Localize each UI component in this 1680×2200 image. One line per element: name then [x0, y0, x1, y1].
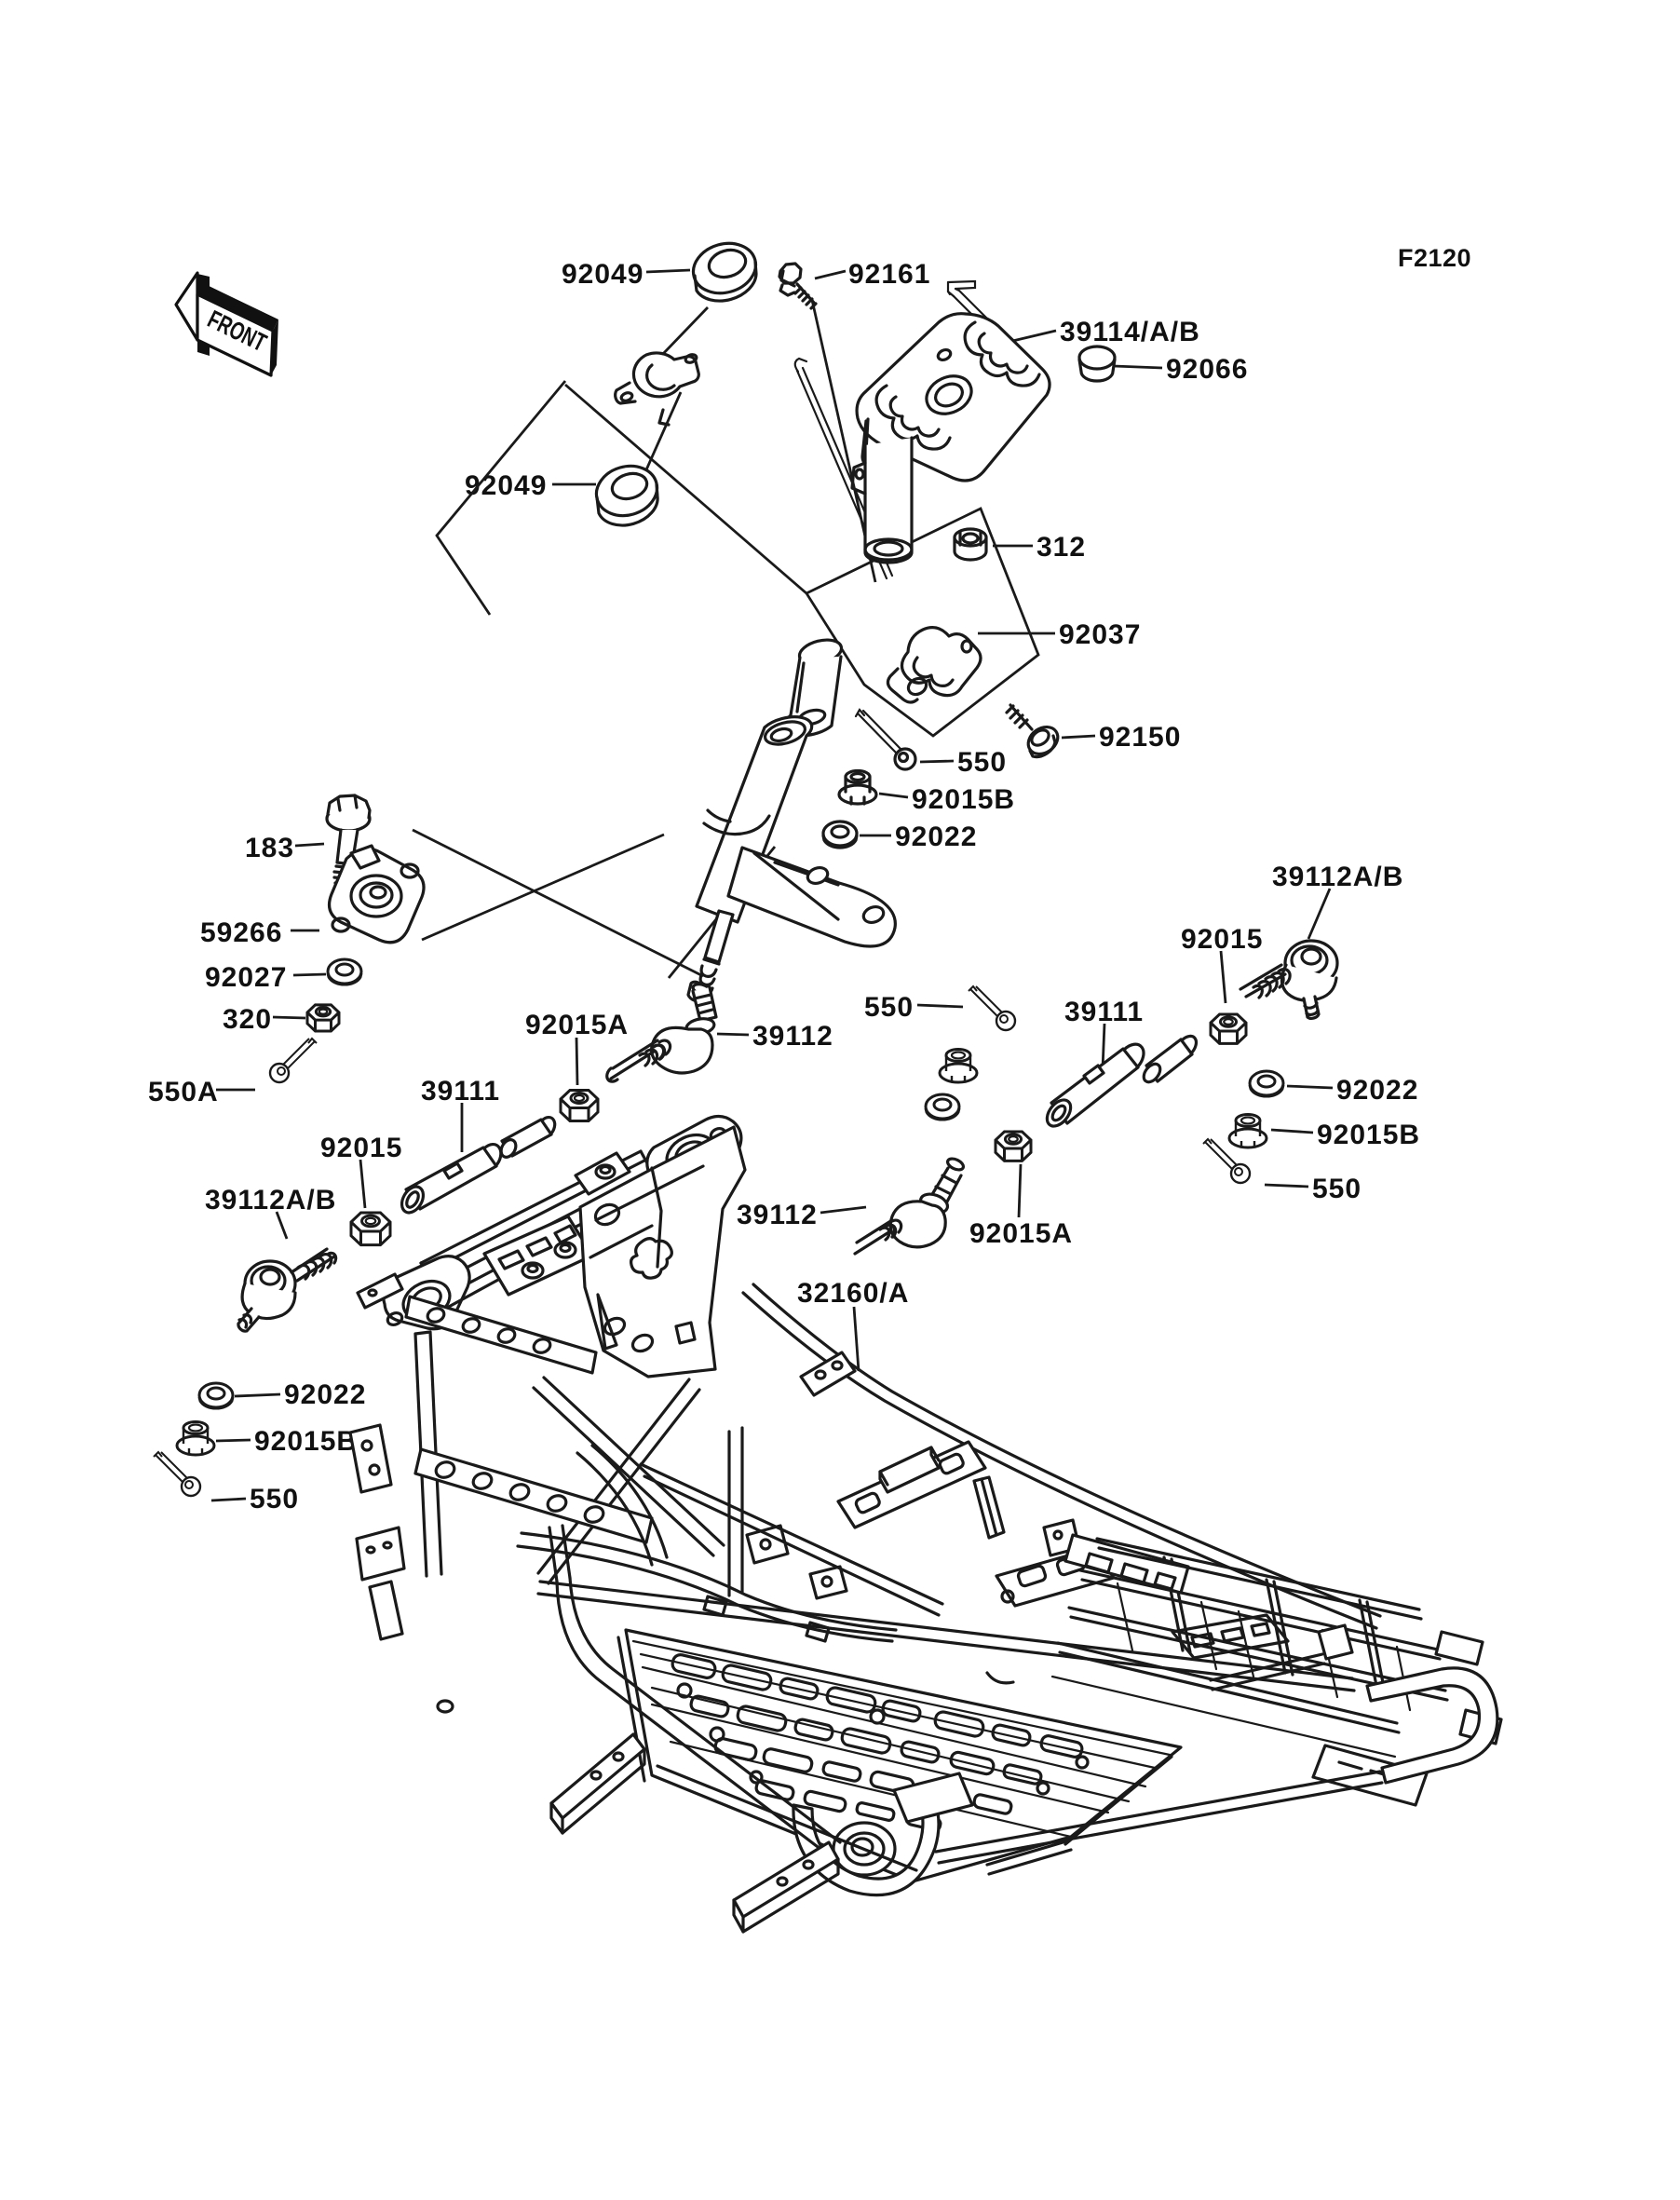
svg-text:92015A: 92015A — [969, 1218, 1073, 1249]
svg-text:550: 550 — [864, 992, 914, 1023]
svg-text:92015B: 92015B — [1317, 1120, 1420, 1150]
svg-text:92037: 92037 — [1059, 619, 1141, 650]
svg-text:92015: 92015 — [320, 1133, 402, 1163]
svg-text:92027: 92027 — [205, 962, 287, 993]
svg-text:92049: 92049 — [562, 259, 644, 290]
svg-text:39112A/B: 39112A/B — [205, 1185, 336, 1215]
svg-text:39112A/B: 39112A/B — [1272, 862, 1403, 892]
svg-text:39112: 39112 — [752, 1021, 833, 1052]
svg-text:92015: 92015 — [1181, 924, 1263, 955]
svg-text:550: 550 — [1312, 1174, 1362, 1204]
svg-text:92015A: 92015A — [525, 1010, 629, 1040]
svg-text:F2120: F2120 — [1398, 244, 1471, 272]
svg-text:183: 183 — [245, 833, 294, 863]
svg-text:59266: 59266 — [200, 917, 282, 948]
svg-text:92150: 92150 — [1099, 722, 1181, 753]
svg-text:320: 320 — [223, 1004, 272, 1035]
svg-text:550A: 550A — [148, 1077, 219, 1107]
svg-text:92066: 92066 — [1166, 354, 1248, 385]
svg-text:39111: 39111 — [1064, 997, 1144, 1027]
svg-text:92022: 92022 — [1336, 1075, 1418, 1106]
svg-text:39112: 39112 — [737, 1200, 818, 1230]
svg-text:39114/A/B: 39114/A/B — [1060, 317, 1200, 347]
svg-text:32160/A: 32160/A — [797, 1278, 909, 1309]
svg-text:550: 550 — [250, 1484, 299, 1514]
svg-text:92161: 92161 — [848, 259, 930, 290]
svg-text:550: 550 — [957, 747, 1007, 778]
svg-text:92015B: 92015B — [254, 1426, 358, 1457]
svg-text:92022: 92022 — [284, 1379, 366, 1410]
svg-text:92022: 92022 — [895, 822, 977, 852]
svg-text:312: 312 — [1036, 532, 1086, 563]
svg-text:92015B: 92015B — [912, 784, 1015, 815]
svg-text:39111: 39111 — [421, 1076, 500, 1107]
